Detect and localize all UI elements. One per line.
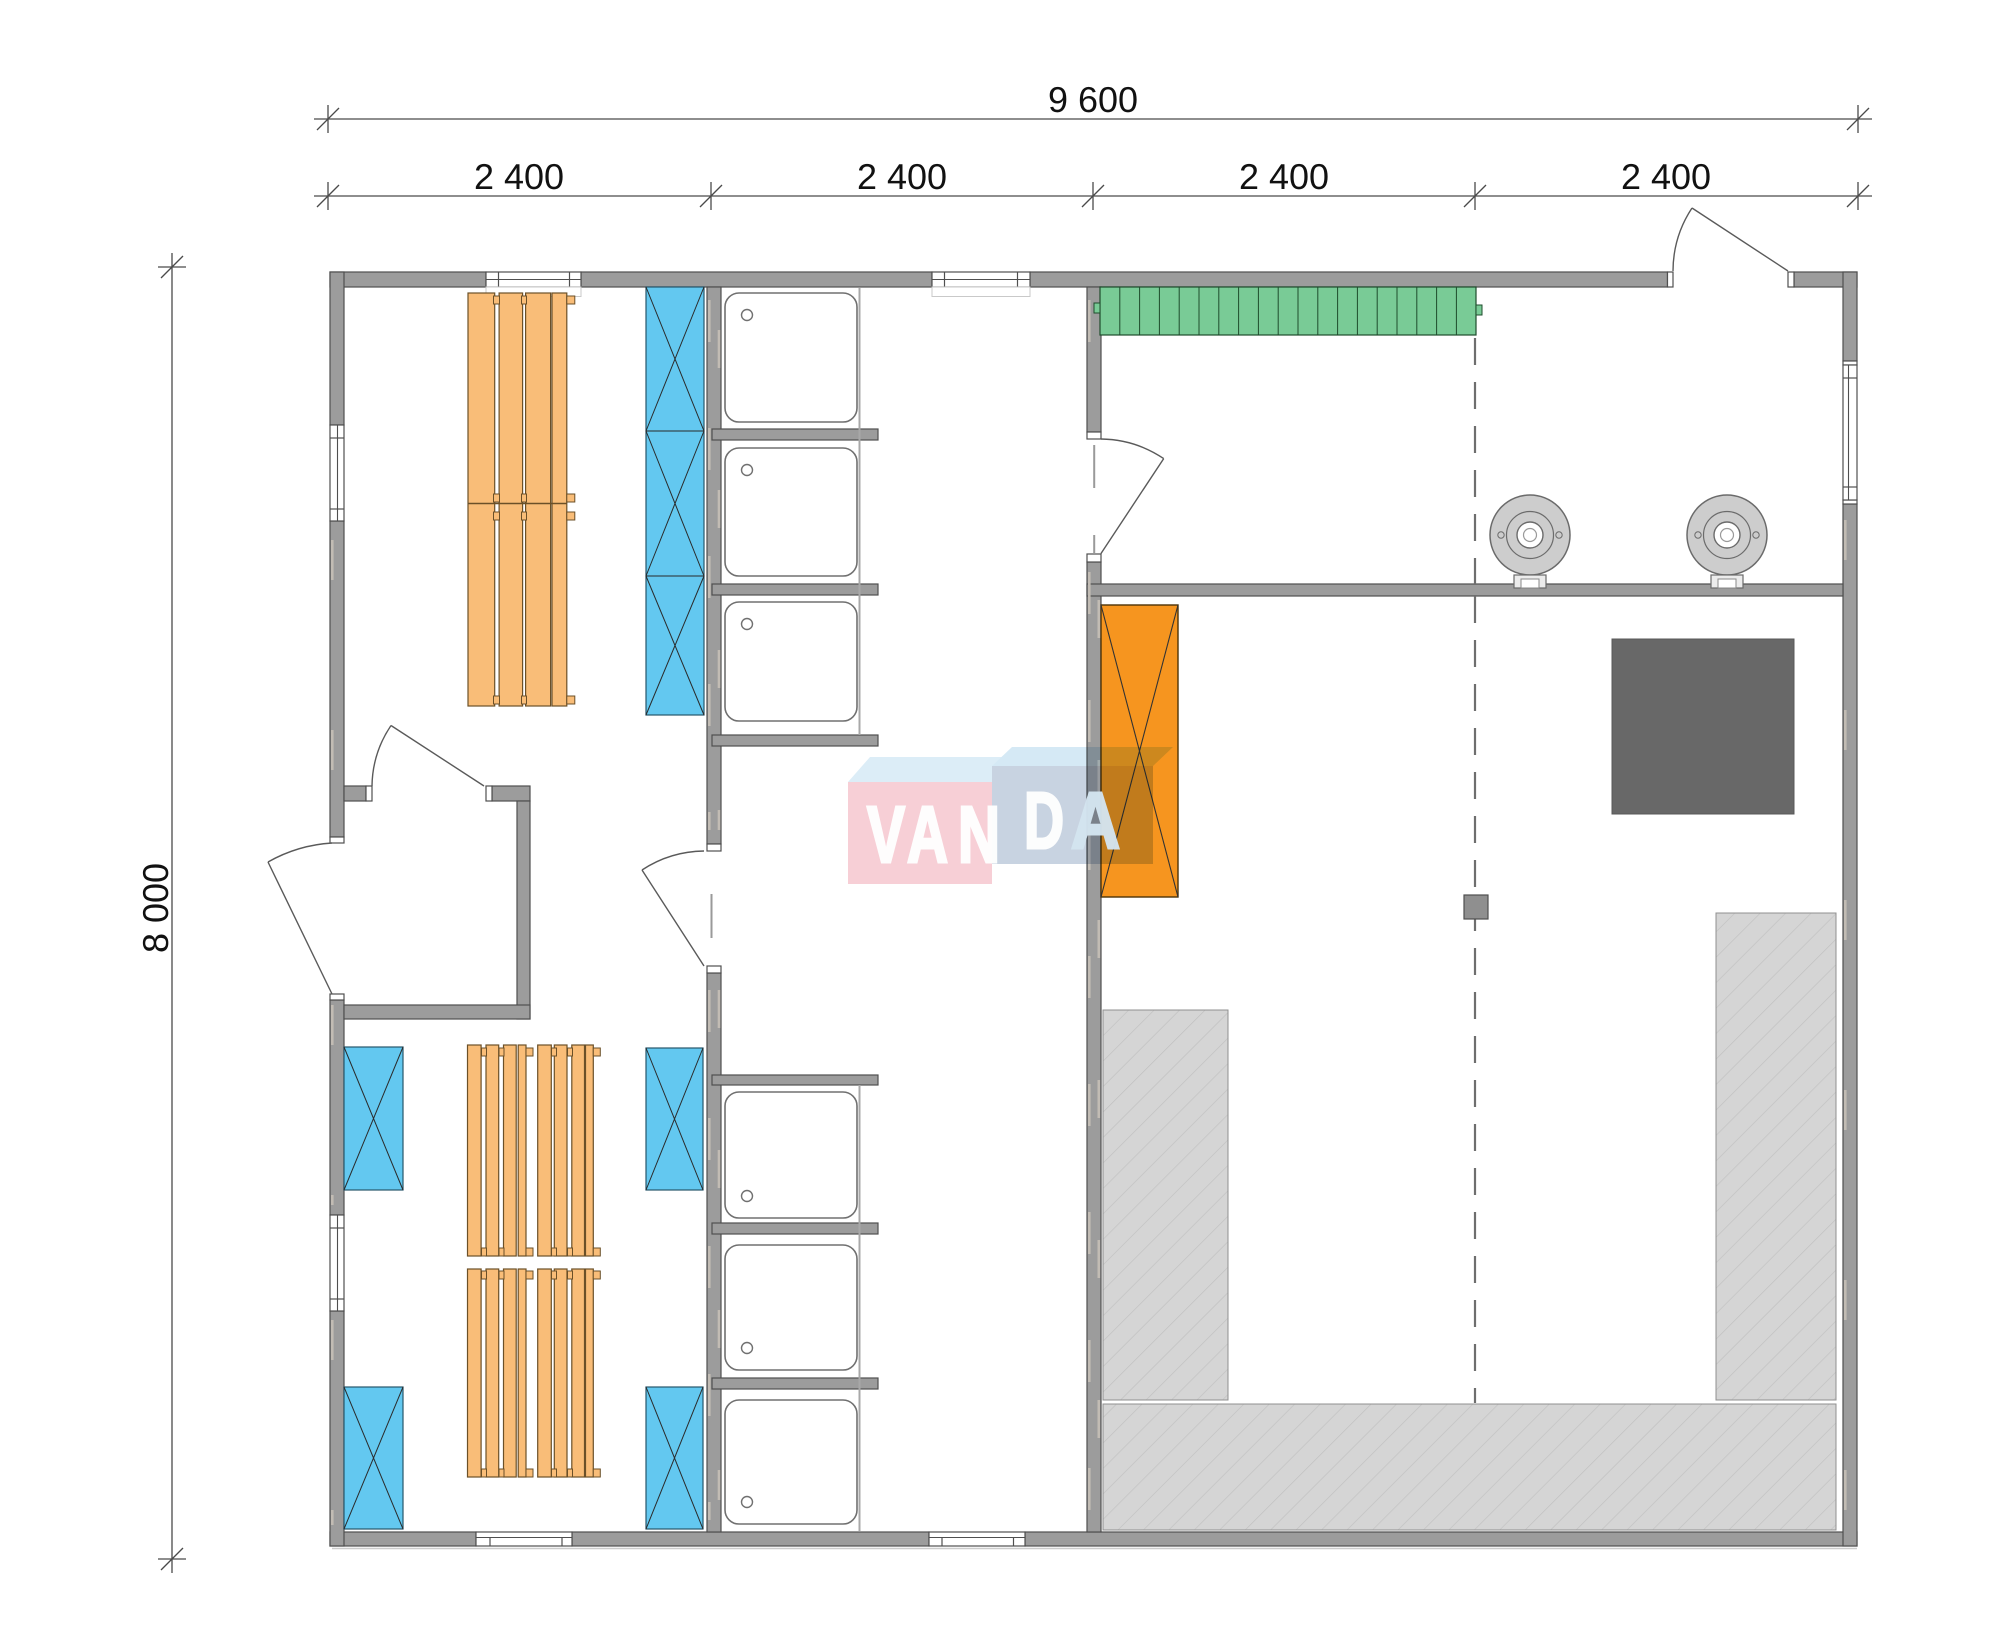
svg-text:V: V	[867, 790, 905, 879]
svg-text:2 400: 2 400	[857, 156, 947, 197]
svg-text:8 000: 8 000	[135, 863, 176, 953]
svg-text:2 400: 2 400	[1239, 156, 1329, 197]
svg-text:2 400: 2 400	[1621, 156, 1711, 197]
svg-text:D: D	[1024, 776, 1064, 865]
svg-text:N: N	[958, 790, 1000, 879]
svg-text:A: A	[907, 790, 948, 879]
svg-text:2 400: 2 400	[474, 156, 564, 197]
svg-text:A: A	[1071, 776, 1120, 865]
svg-text:9 600: 9 600	[1048, 79, 1138, 120]
